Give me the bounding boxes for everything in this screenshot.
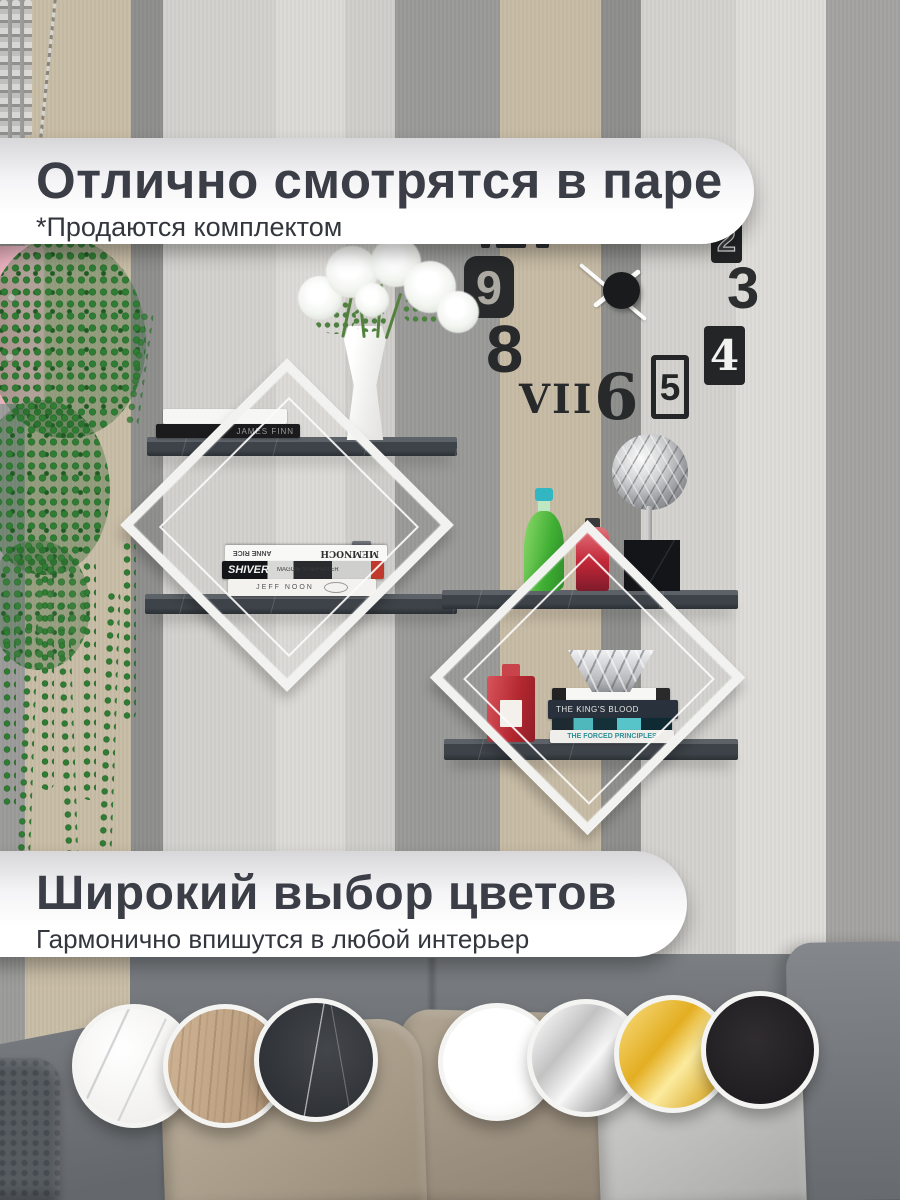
hanging-chain-icon <box>0 0 8 142</box>
clock-number-vii: VII <box>519 380 593 420</box>
banner-colors: Широкий выбор цветов Гармонично впишутся… <box>0 851 687 957</box>
vine-strand <box>40 560 54 790</box>
metal-sphere-ornament <box>612 434 688 510</box>
clock-number-5-tile: 5 <box>651 355 689 419</box>
vine-strand <box>82 560 96 800</box>
chrysanthemum-flower <box>355 283 389 317</box>
ornament-stand <box>647 506 652 542</box>
clock-number-3: 3 <box>727 260 759 318</box>
banner-pair-title: Отлично смотрятся в паре <box>36 151 754 210</box>
hanging-chain-icon <box>12 0 20 140</box>
marketplace-product-infographic: 9 8 VII 6 5 4 3 2 JAMES FINN MEMNOCH ANN… <box>0 0 900 1200</box>
banner-colors-subtitle: Гармонично впишутся в любой интерьер <box>36 924 687 955</box>
hanging-chain-icon <box>24 0 32 136</box>
chrysanthemum-flower <box>437 291 479 333</box>
dark-patterned-pillow <box>0 1058 60 1200</box>
swatch-black-marble <box>254 998 378 1122</box>
vine-strand <box>122 540 136 720</box>
clock-number-4-tile: 4 <box>704 326 745 385</box>
swatch-black <box>701 991 819 1109</box>
green-bottle-cap <box>535 488 553 501</box>
banner-pair: Отлично смотрятся в паре *Продаются комп… <box>0 138 754 244</box>
clock-hub <box>603 272 640 309</box>
clock-number-6: 6 <box>594 366 639 430</box>
clock-number-8: 8 <box>486 316 523 383</box>
banner-pair-subtitle: *Продаются комплектом <box>36 212 754 243</box>
banner-colors-title: Широкий выбор цветов <box>36 866 687 921</box>
vine-strand <box>2 600 16 810</box>
